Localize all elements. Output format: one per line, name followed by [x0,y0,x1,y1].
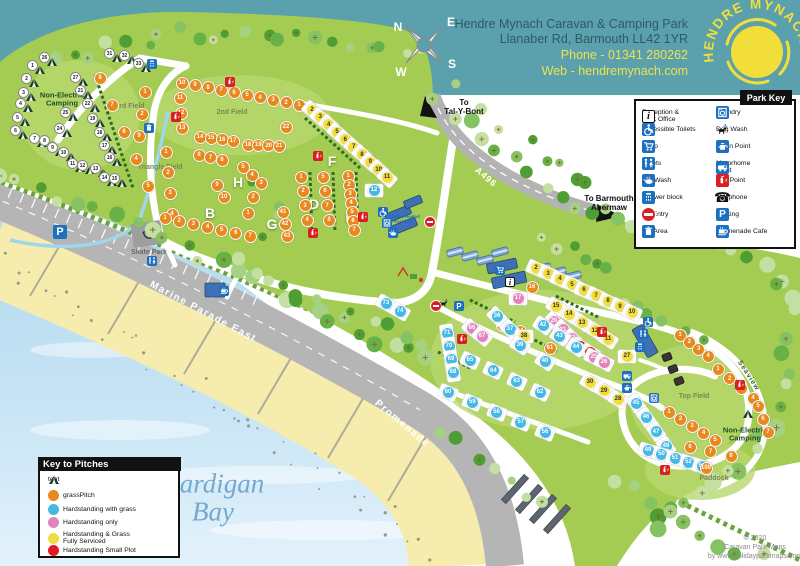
pitch-number: 42 [537,319,550,332]
fire-icon [457,334,467,344]
pitch-number: 8 [725,450,738,463]
pitch-number: 6 [228,86,241,99]
tent-number: 1 [27,60,38,71]
shower-icon [147,59,157,69]
park-key-item-cafe: Promenade Cafe [716,228,767,235]
cafe-icon [219,286,229,296]
tent-number: 27 [70,72,81,83]
potwash-icon [388,228,398,238]
tent-number: 10 [58,147,69,158]
pitch-number: 62 [534,386,547,399]
potwash-icon [642,174,655,187]
fire-icon [358,212,368,222]
pitch-key-item-label: Hardstanding & Grass Fully Serviced [63,531,130,545]
pitch-number: 4 [254,91,267,104]
pitch-number: 1 [712,363,725,376]
pitch-key-item: Hardstanding with grass [48,504,136,515]
pitch-key-legend: Key to Pitches tentgrassPitchHardstandin… [38,457,180,558]
pitch-number: 6 [319,185,332,198]
pitch-number: 4 [201,221,214,234]
pitch-number: 5 [241,89,254,102]
pitch-key-item-label: Hardstanding Small Plot [63,547,136,554]
pitch-number: 10 [218,191,231,204]
bin-icon [642,225,655,238]
pitch-number: 61 [544,342,557,355]
pitch-number: 63 [510,375,523,388]
pitch-color-dot [48,545,59,556]
pitch-number: 2 [162,166,175,179]
pitch-color-dot [48,490,59,501]
pitch-number: 67 [476,330,489,343]
pitch-color-dot [48,517,59,528]
park-key-item-accessible: Accessible Toilets [642,126,696,133]
pitch-number: 28 [612,393,625,406]
pitch-color-dot [48,504,59,515]
pitch-key-item-label: grassPitch [63,492,95,499]
pitch-number: 1 [160,146,173,159]
pitch-number: 9 [211,179,224,192]
pitch-number: 5 [142,180,155,193]
pitch-number: 13 [176,122,189,135]
pitch-number: 7 [204,151,217,164]
tent-number: 3 [18,87,29,98]
compass-n: N [394,20,403,34]
pitch-key-item-label: Hardstanding with grass [63,506,136,513]
tent-number: 16 [104,152,115,163]
pitch-number: 6 [118,126,131,139]
pitch-number: 6 [684,441,697,454]
pitch-number: 8 [323,214,336,227]
pitch-number: 43 [553,330,566,343]
park-key-item-shower: Shower block [642,194,683,201]
pitch-number: 5 [215,224,228,237]
park-key-item-bin: Bin Area [642,228,668,235]
park-map: N E W S HENDRE MYNACH Hendre Mynach Cara… [0,0,800,566]
pitch-number: 7 [348,224,361,237]
pitch-number: 21 [273,140,286,153]
tent-number: 12 [77,160,88,171]
pitch-number: 43 [281,230,294,243]
tent-number: 22 [82,98,93,109]
pitch-number: 7 [244,230,257,243]
park-key-item-dogwash: Dog Wash [716,126,747,133]
pitch-number: 4 [130,153,143,166]
pitch-number: 3 [255,177,268,190]
pitch-number: 36 [491,310,504,323]
park-key-item-phone: ☎Telephone [716,194,747,201]
park-key-item-toilets: Toilets [642,160,661,167]
shop-icon [495,265,505,275]
park-key-item-motorhome: Motorhome Point [716,160,750,174]
pitch-number: 10 [176,77,189,90]
pitch-number: 2 [674,413,687,426]
tent-number: 15 [109,173,120,184]
elsan-icon [622,383,632,393]
park-key-item-fire: Fire Point [716,177,745,184]
pitch-number: 59 [466,396,479,409]
pitch-number: 22 [280,121,293,134]
shower-icon [642,191,655,204]
tent-icon [742,408,754,420]
pitch-number: 60 [442,386,455,399]
pitch-number: 3 [267,94,280,107]
pitch-number: 10 [626,306,639,319]
compass-w: W [395,65,407,79]
copyright-line: by www.holidayparkmaps.com [700,553,800,562]
parking-icon: P [53,225,67,239]
pitch-number: 7 [704,445,717,458]
pitch-number: 26 [598,356,611,369]
tent-number: 19 [87,113,98,124]
pitch-key-item: Hardstanding only [48,517,118,528]
park-key-title-text: Park Key [747,93,786,103]
bin-icon [144,123,154,133]
park-phone: Phone - 01341 280262 [561,48,688,62]
laundry-icon [382,218,392,228]
reception-icon: i [642,110,655,123]
pitch-number: 68 [447,366,460,379]
park-key-item-parking: PParking [716,211,739,218]
pitch-number: 6 [757,413,770,426]
pitch-number: 4 [697,427,710,440]
fire-icon [225,77,235,87]
tent-number: 25 [60,107,71,118]
accessible-icon [642,123,655,136]
pitch-number: 64 [487,364,500,377]
copyright: © 2020Caravan Park Mapsby www.holidaypar… [700,535,800,561]
pitch-number: 27 [621,350,634,363]
pitch-number: 3 [187,218,200,231]
tent-number: 17 [99,140,110,151]
accessible-icon [643,317,653,327]
noentry-icon [642,208,655,221]
park-key-item-reception: iReception & Park Office [642,109,679,123]
pitch-key-item: Hardstanding Small Plot [48,545,136,556]
laundry-icon [649,393,659,403]
cafe-icon [716,225,729,238]
pitch-number: 3 [164,187,177,200]
pitch-number: 11 [381,171,394,184]
park-key-item-laundry: Laundry [716,109,741,116]
pitch-number: 2 [297,185,310,198]
pitch-number: 7 [106,99,119,112]
park-key-item-shop: Shop [642,143,658,150]
phone-icon: ☎ [716,191,729,204]
motorhome-icon [622,371,632,381]
fire-icon [308,228,318,238]
fire-icon [735,380,745,390]
pitch-number: 2 [136,108,149,121]
pitch-key-title-text: Key to Pitches [43,459,108,470]
pitch-number: 39 [514,339,527,352]
tent-number: 2 [21,73,32,84]
copyright-line: © 2020 [700,535,800,544]
pitch-number: 46 [640,411,653,424]
pitch-number: 17 [227,135,240,148]
copyright-line: Caravan Park Maps [700,544,800,553]
tent-number: 9 [47,142,58,153]
pitch-number: 1 [242,207,255,220]
toilets-icon [642,157,655,170]
park-key-item-potwash: Pot Wash [642,177,671,184]
toilets-icon [638,329,648,339]
fire-icon [660,465,670,475]
pitch-number: 47 [650,425,663,438]
fire-icon [313,151,323,161]
pitch-number: 29 [598,384,611,397]
park-web: Web - hendremynach.com [542,64,688,78]
tent-number: 18 [94,127,105,138]
park-key-title: Park Key [740,90,792,105]
tent-number: 24 [54,123,65,134]
pitch-number: 6 [216,154,229,167]
motorhome-icon [716,161,729,174]
pitch-number: 3 [299,199,312,212]
fire-icon [171,112,181,122]
pitch-number: 2 [247,191,260,204]
dogwash-icon [716,123,729,136]
pitch-key-item: grassPitch [48,490,95,501]
pitch-number: 12 [368,184,381,197]
laundry-icon [716,106,729,119]
pitch-number: 1 [159,212,172,225]
park-address: Llanaber Rd, Barmouth LL42 1YR [500,32,688,46]
pitch-number: 16 [526,281,539,294]
pitch-number: 8 [202,81,215,94]
pitch-number: 41 [277,206,290,219]
pitch-key-title: Key to Pitches [38,457,181,471]
noentry-icon [425,217,435,227]
reception-icon: i [505,277,515,287]
pitch-number: 7 [762,426,775,439]
park-key-item-elsan: Elsan Point [716,143,750,150]
park-name: Hendre Mynach Caravan & Camping Park [455,17,689,31]
pitch-number: 9 [189,79,202,92]
pitch-key-item: Hardstanding & Grass Fully Serviced [48,531,130,545]
shower-icon [635,342,645,352]
pitch-number: 1 [139,86,152,99]
tent-number: 4 [15,98,26,109]
elsan-icon [716,140,729,153]
tent-number: 13 [90,163,101,174]
skate-icon [142,230,152,240]
pitch-number: 40 [539,355,552,368]
pitch-number: 44 [570,341,583,354]
tent-number: 33 [133,58,144,69]
pitch-number: 42 [279,218,292,231]
pitch-number: 45 [630,397,643,410]
pitch-number: 57 [514,416,527,429]
tent-number: 32 [119,50,130,61]
dogwash-icon [439,298,449,308]
park-key-item-noentry: No Entry [642,211,668,218]
pitch-number: 2 [173,215,186,228]
pitch-number: 58 [490,406,503,419]
tent-icon [48,474,60,486]
pitch-number: 4 [301,214,314,227]
pitch-number: 11 [174,92,187,105]
park-key-legend: iReception & Park OfficeAccessible Toile… [634,99,796,249]
parking-icon: P [454,301,464,311]
tent-number: 5 [12,112,23,123]
compass-s: S [448,57,456,71]
pitch-number: 5 [317,171,330,184]
pitch-color-dot [48,533,59,544]
pitch-number: 74 [394,305,407,318]
pitch-number: 17 [512,292,525,305]
pitch-number: 65 [464,354,477,367]
fire-icon [716,174,729,187]
pitch-number: 8 [94,72,107,85]
pitch-key-item-label: Hardstanding only [63,519,118,526]
tent-number: 21 [75,85,86,96]
pitch-number: 7 [321,199,334,212]
pitch-number: 56 [539,426,552,439]
parking-icon: P [716,208,729,221]
toilets-icon [147,256,157,266]
tent-number: 6 [10,125,21,136]
pitch-key-item: tent [48,476,59,483]
tent-number: 26 [39,52,50,63]
accessible-icon [378,207,388,217]
pitch-number: 2 [280,96,293,109]
pitch-number: 4 [702,350,715,363]
shop-icon [642,140,655,153]
fire-icon [597,327,607,337]
pitch-number: 1 [295,171,308,184]
tent-number: 31 [104,48,115,59]
pitch-number: 100 [700,462,713,475]
pitch-number: 6 [229,227,242,240]
